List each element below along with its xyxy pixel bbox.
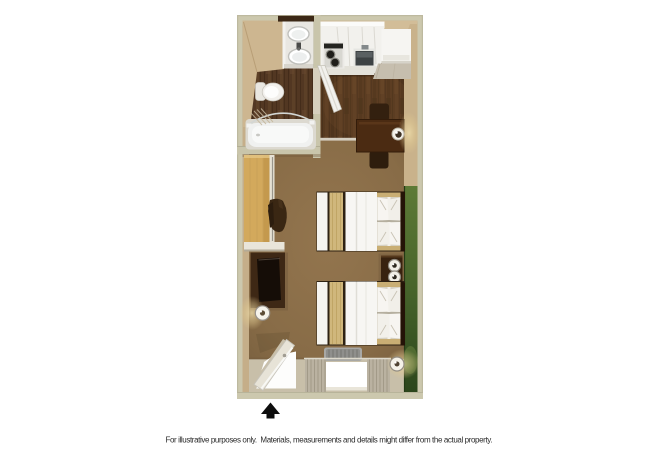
- svg-text:For illustrative purposes only: For illustrative purposes only. Material…: [166, 436, 493, 445]
